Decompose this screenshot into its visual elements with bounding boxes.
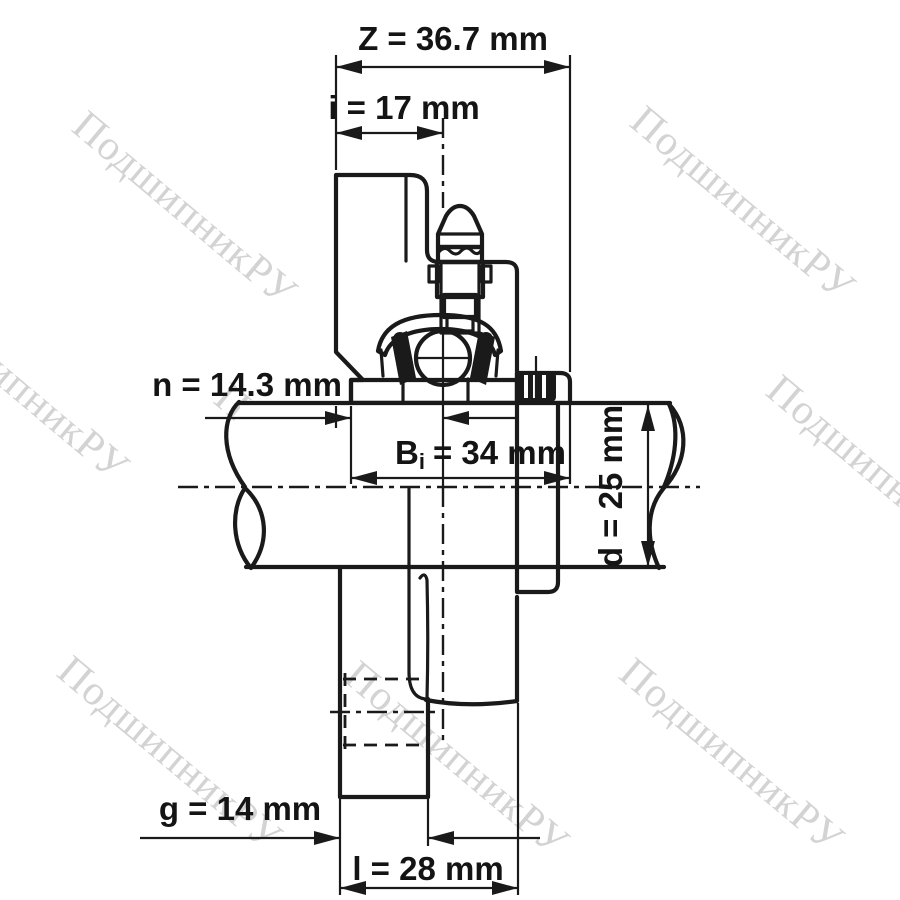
fitting-hex-flat-left (429, 266, 438, 282)
watermark-text: ПодшипникРУ (758, 366, 900, 579)
dimension-i: i = 17 mm (328, 89, 479, 140)
fitting-hex (437, 262, 483, 297)
arrowhead (417, 126, 443, 140)
seal-lip-left (393, 332, 407, 346)
dim-label-z: Z = 36.7 mm (358, 20, 548, 57)
arrowhead (336, 60, 362, 74)
watermark-text: ПодшипникРУ (622, 97, 864, 310)
arrowhead (336, 126, 362, 140)
fitting-hex-flat-right (482, 266, 491, 282)
watermark-text: ПодшипникРУ (49, 647, 291, 860)
seal-lip-right (479, 332, 493, 346)
fillet-edge-curve (420, 575, 428, 699)
arrowhead (428, 831, 454, 845)
outer-ring-left-face (381, 350, 383, 376)
watermark-text: ПодшипникРУ (0, 277, 137, 490)
watermark-text: ПодшипникРУ (336, 652, 578, 865)
housing-section (336, 175, 517, 403)
arrowhead (314, 831, 340, 845)
dim-label-l: l = 28 mm (352, 850, 503, 887)
dimension-z: Z = 36.7 mm (336, 20, 570, 372)
arrowhead (544, 60, 570, 74)
dim-label-n: n = 14.3 mm (152, 366, 342, 403)
housing-body (336, 175, 517, 403)
housing-cylinder-bottom (426, 700, 517, 704)
bearing-drawing-svg: ПодшипникРУ ПодшипникРУ ПодшипникРУ Подш… (0, 0, 900, 900)
watermark-text: ПодшипникРУ (611, 649, 853, 862)
watermark-text: ПодшипникРУ (64, 102, 306, 315)
dim-label-g: g = 14 mm (159, 790, 321, 827)
dim-label-d: d = 25 mm (592, 405, 629, 567)
dim-label-i: i = 17 mm (328, 89, 479, 126)
technical-drawing-page: ПодшипникРУ ПодшипникРУ ПодшипникРУ Подш… (0, 0, 900, 900)
fitting-cap (438, 206, 482, 247)
outer-ring-right-face (496, 350, 498, 376)
